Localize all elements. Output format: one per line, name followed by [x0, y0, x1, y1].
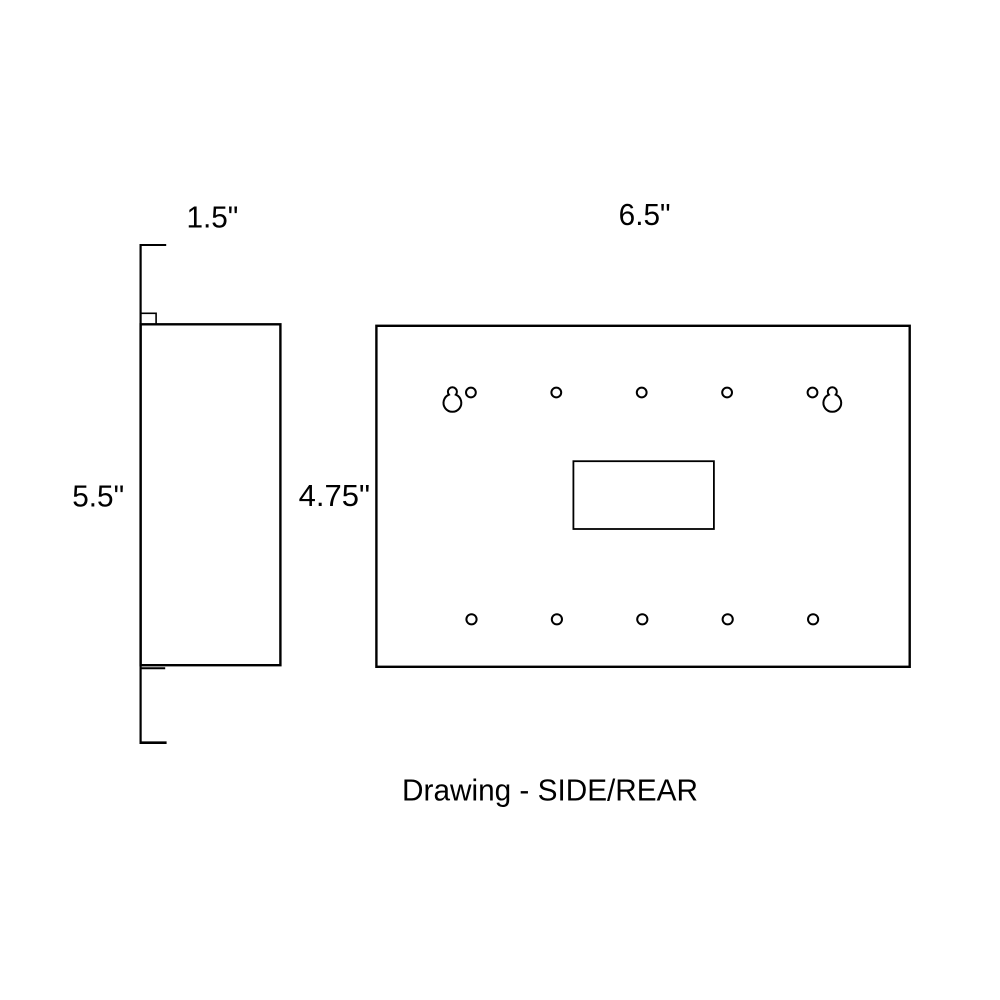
svg-text:4.75": 4.75": [299, 478, 370, 513]
svg-text:6.5": 6.5": [619, 197, 671, 232]
svg-text:Drawing - SIDE/REAR: Drawing - SIDE/REAR: [402, 773, 698, 808]
svg-text:5.5": 5.5": [72, 479, 124, 514]
svg-text:1.5": 1.5": [186, 200, 238, 235]
